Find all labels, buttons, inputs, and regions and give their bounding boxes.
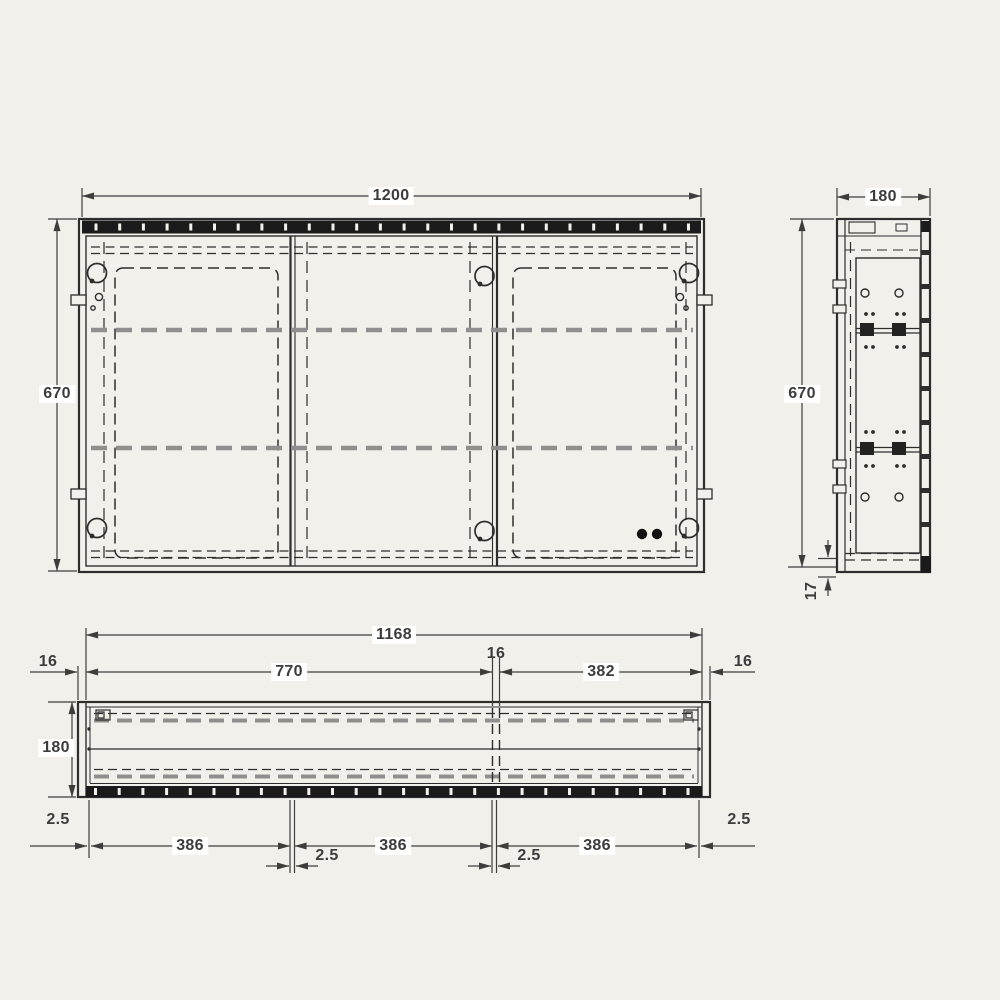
plan-hidden-lines bbox=[90, 714, 698, 777]
plan-view bbox=[78, 702, 710, 797]
hidden-horizontals bbox=[91, 247, 693, 558]
label-plan-left-panel: 16 bbox=[39, 653, 57, 671]
label-front-width: 1200 bbox=[369, 187, 414, 205]
label-plan-door1: 386 bbox=[172, 837, 208, 855]
hinge-marks bbox=[88, 264, 699, 542]
label-plan-gap1: 2.5 bbox=[315, 847, 338, 865]
dim-row-compartments bbox=[30, 658, 755, 706]
label-plan-depth: 180 bbox=[38, 739, 74, 757]
side-view bbox=[833, 219, 931, 573]
led-strip-top bbox=[82, 221, 701, 234]
technical-drawing-page: 1200 670 180 670 17 1168 16 770 16 382 1… bbox=[0, 0, 1000, 1000]
wall-brackets-front bbox=[71, 295, 712, 499]
screw-holes bbox=[91, 293, 688, 310]
label-side-height: 670 bbox=[784, 385, 820, 403]
dimension-lines bbox=[30, 188, 930, 873]
label-plan-gap-left: 2.5 bbox=[46, 811, 69, 829]
cabinet-drawing bbox=[0, 0, 1000, 1000]
door-dividers bbox=[291, 236, 498, 566]
label-plan-right-panel: 16 bbox=[734, 653, 752, 671]
label-side-depth: 180 bbox=[865, 188, 901, 206]
label-side-overhang: 17 bbox=[803, 582, 821, 600]
shelf-hardware-bottom bbox=[856, 430, 920, 501]
shelf-hardware-top bbox=[856, 289, 920, 349]
door-overhang-lip bbox=[921, 556, 931, 573]
label-plan-left-compartment: 770 bbox=[271, 663, 307, 681]
label-plan-gap2: 2.5 bbox=[517, 847, 540, 865]
led-strip-side bbox=[922, 221, 931, 232]
side-inner-panel bbox=[856, 258, 920, 553]
top-fitting-small bbox=[896, 224, 907, 231]
wall-brackets-side bbox=[833, 280, 846, 493]
plan-dots bbox=[87, 727, 700, 750]
label-plan-partition: 16 bbox=[487, 645, 505, 663]
label-plan-right-compartment: 382 bbox=[583, 663, 619, 681]
led-strip-bottom bbox=[86, 786, 702, 797]
front-view bbox=[71, 219, 712, 572]
label-plan-inner-width: 1168 bbox=[372, 626, 416, 644]
front-inner-frame bbox=[86, 236, 697, 566]
label-plan-door2: 386 bbox=[375, 837, 411, 855]
back-panel-right bbox=[513, 268, 676, 558]
label-front-height: 670 bbox=[39, 385, 75, 403]
shelf-lines bbox=[91, 330, 693, 448]
socket-dots bbox=[637, 529, 662, 539]
door-hidden-edges bbox=[104, 242, 686, 560]
front-outer-frame bbox=[79, 219, 704, 572]
back-panel-left bbox=[115, 268, 278, 558]
label-plan-door3: 386 bbox=[579, 837, 615, 855]
label-plan-gap-right: 2.5 bbox=[727, 811, 750, 829]
top-fitting bbox=[849, 222, 875, 233]
